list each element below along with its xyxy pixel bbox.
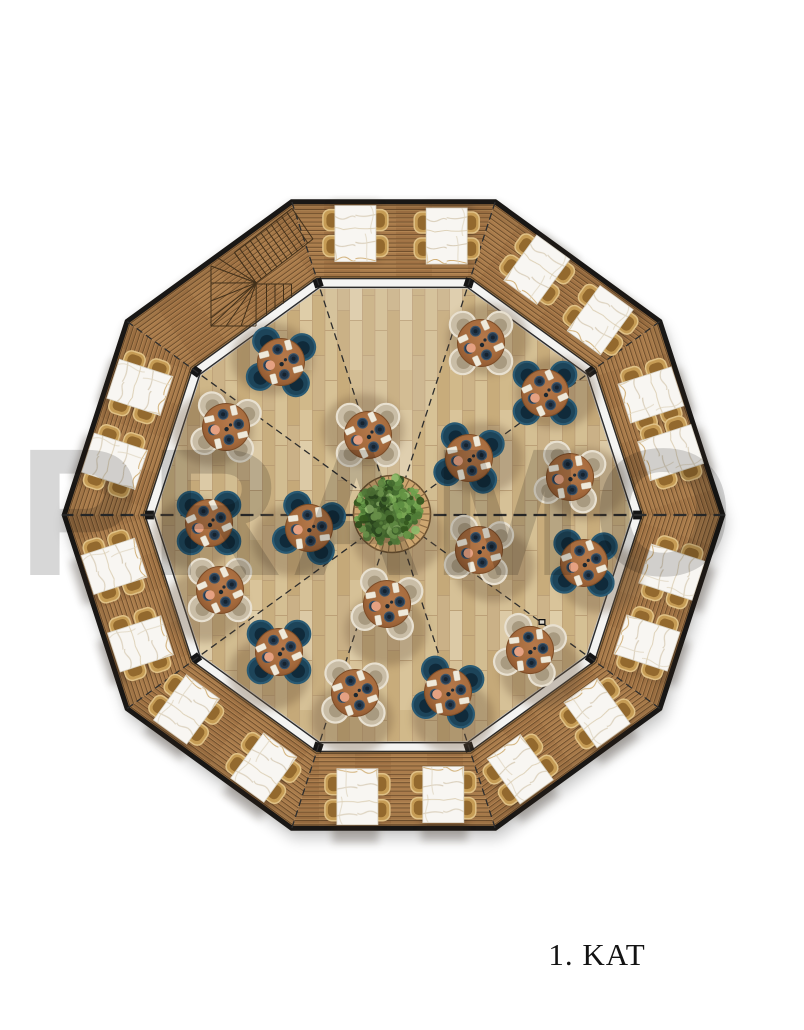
svg-text:1. KAT: 1. KAT (548, 937, 645, 972)
svg-text:PRAMO: PRAMO (20, 415, 745, 611)
